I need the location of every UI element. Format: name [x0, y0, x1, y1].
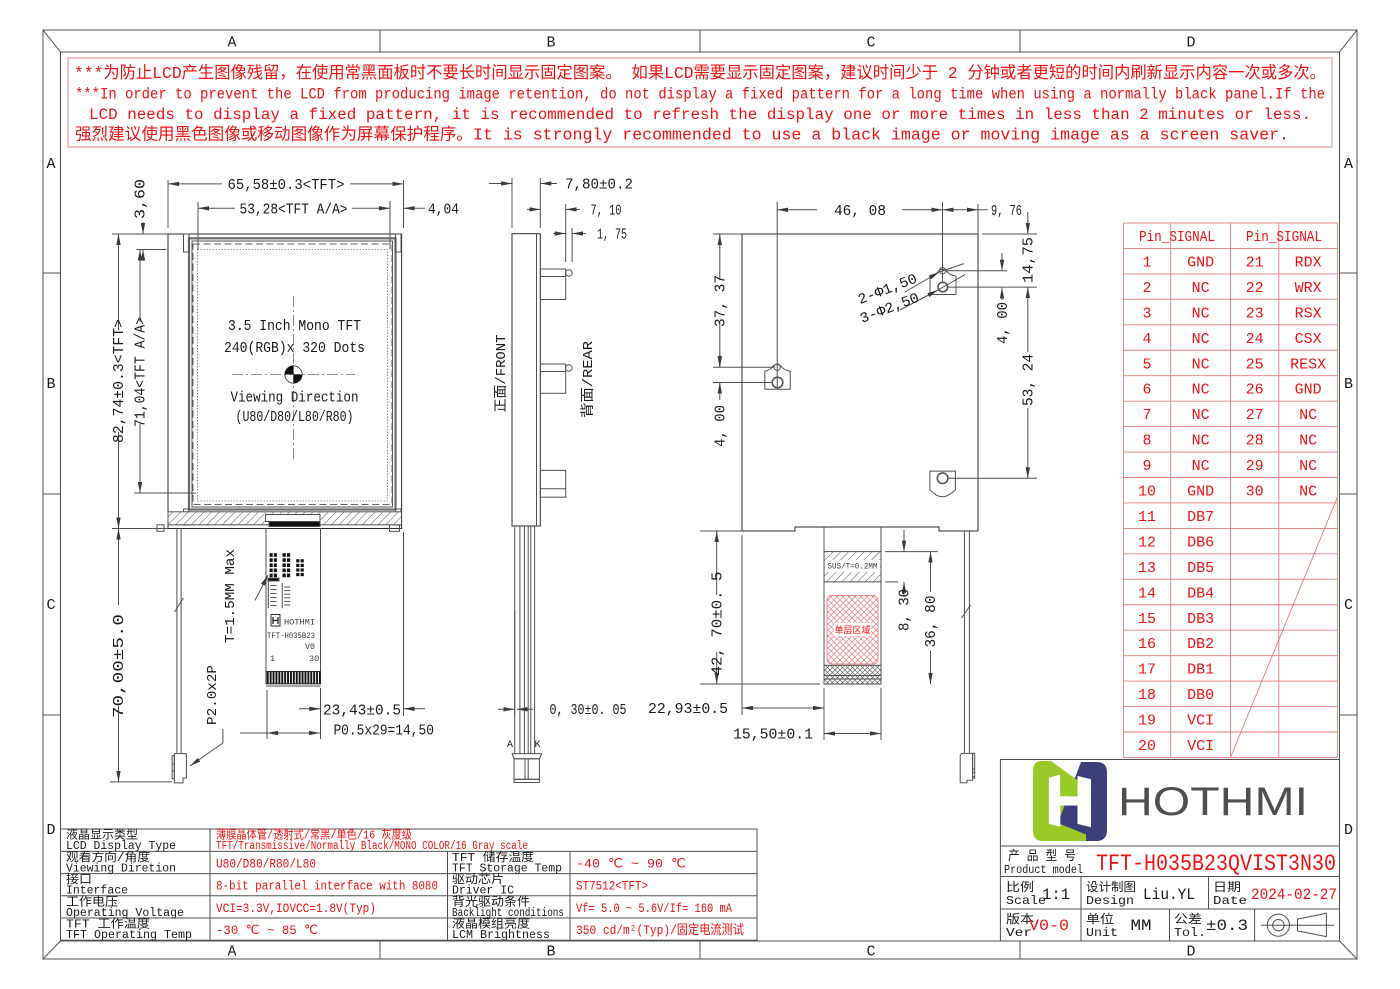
svg-text:8, 30: 8, 30 [898, 589, 914, 631]
svg-text:比例: 比例 [1006, 880, 1034, 895]
svg-text:B: B [546, 944, 555, 961]
svg-text:30: 30 [309, 654, 319, 664]
svg-text:10: 10 [1138, 484, 1156, 501]
svg-text:Tol.: Tol. [1174, 926, 1206, 940]
svg-text:82,74±0.3<TFT>: 82,74±0.3<TFT> [112, 319, 128, 443]
svg-text:9: 9 [1143, 458, 1152, 475]
svg-text:29: 29 [1246, 458, 1264, 475]
svg-text:42, 70±0. 5: 42, 70±0. 5 [710, 572, 726, 676]
svg-text:6: 6 [1143, 382, 1152, 399]
svg-text:240(RGB)x 320 Dots: 240(RGB)x 320 Dots [224, 341, 365, 357]
svg-text:70,00±5.0: 70,00±5.0 [112, 614, 128, 718]
svg-text:Product model: Product model [1004, 863, 1083, 877]
svg-text:46, 08: 46, 08 [834, 204, 886, 220]
svg-text:DB4: DB4 [1187, 585, 1214, 602]
svg-text:强烈建议使用黑色图像或移动图像作为屏幕保护程序。It is: 强烈建议使用黑色图像或移动图像作为屏幕保护程序。It is strongly r… [75, 125, 1289, 145]
svg-text:Unit: Unit [1086, 926, 1118, 940]
svg-text:14: 14 [1138, 585, 1156, 602]
svg-text:Liu.YL: Liu.YL [1143, 886, 1195, 904]
svg-text:9, 76: 9, 76 [991, 204, 1022, 220]
svg-text:TFT Operating Temp: TFT Operating Temp [66, 929, 192, 942]
svg-text:TFT-H035B23: TFT-H035B23 [267, 631, 315, 641]
svg-text:NC: NC [1299, 484, 1317, 501]
svg-text:21: 21 [1246, 254, 1264, 271]
svg-text:26: 26 [1246, 382, 1264, 399]
svg-text:A: A [227, 944, 236, 961]
svg-text:RDX: RDX [1295, 254, 1322, 271]
svg-text:25: 25 [1246, 356, 1264, 373]
svg-text:NC: NC [1299, 433, 1317, 450]
svg-text:16: 16 [1138, 636, 1156, 653]
svg-text:HOTHMI: HOTHMI [284, 618, 315, 628]
svg-text:DB6: DB6 [1187, 534, 1214, 551]
svg-text:1: 1 [1143, 254, 1152, 271]
svg-text:1: 1 [270, 654, 275, 664]
svg-text:7: 7 [1143, 407, 1152, 424]
svg-text:TFT-H035B23QVIST3N30: TFT-H035B23QVIST3N30 [1096, 851, 1336, 877]
svg-text:NC: NC [1192, 305, 1210, 322]
svg-text:23,43±0.5: 23,43±0.5 [323, 704, 401, 720]
svg-text:单层区域: 单层区域 [835, 625, 871, 637]
svg-text:13: 13 [1138, 560, 1156, 577]
svg-text:WRX: WRX [1295, 280, 1322, 297]
svg-text:背面/REAR: 背面/REAR [580, 341, 597, 418]
svg-text:3: 3 [1143, 305, 1152, 322]
svg-text:NC: NC [1192, 407, 1210, 424]
svg-text:产 品 型 号: 产 品 型 号 [1008, 849, 1076, 864]
svg-text:C: C [46, 597, 55, 614]
svg-text:14,75: 14,75 [1022, 237, 1038, 283]
svg-text:Pin_SIGNAL: Pin_SIGNAL [1246, 229, 1322, 246]
svg-text:24: 24 [1246, 331, 1264, 348]
svg-text:17: 17 [1138, 662, 1156, 679]
svg-text:53, 24: 53, 24 [1022, 354, 1038, 406]
svg-text:U80/D80/R80/L80: U80/D80/R80/L80 [216, 856, 316, 871]
svg-text:7, 10: 7, 10 [591, 203, 622, 219]
svg-text:3,60: 3,60 [134, 179, 150, 219]
svg-text:20: 20 [1138, 738, 1156, 755]
svg-text:NC: NC [1192, 280, 1210, 297]
svg-text:B: B [1344, 376, 1353, 393]
svg-text:RESX: RESX [1290, 356, 1326, 373]
svg-text:27: 27 [1246, 407, 1264, 424]
svg-text:4, 00: 4, 00 [714, 405, 730, 447]
svg-text:22: 22 [1246, 280, 1264, 297]
svg-text:NC: NC [1299, 407, 1317, 424]
svg-text:Viewing Direction: Viewing Direction [231, 391, 359, 407]
svg-text:NC: NC [1192, 382, 1210, 399]
svg-text:CSX: CSX [1295, 331, 1322, 348]
svg-text:Date: Date [1213, 894, 1247, 908]
svg-text:设计制图: 设计制图 [1086, 880, 1136, 895]
svg-text:DB3: DB3 [1187, 611, 1214, 628]
svg-text:-40 ℃ ~ 90 ℃: -40 ℃ ~ 90 ℃ [576, 856, 686, 871]
svg-text:28: 28 [1246, 433, 1264, 450]
svg-text:VCI=3.3V,IOVCC=1.8V(Typ): VCI=3.3V,IOVCC=1.8V(Typ) [216, 901, 376, 916]
svg-text:DB2: DB2 [1187, 636, 1214, 653]
svg-text:B: B [546, 35, 555, 52]
svg-text:30: 30 [1246, 484, 1264, 501]
svg-text:-30 ℃ ~ 85 ℃: -30 ℃ ~ 85 ℃ [216, 923, 318, 938]
svg-text:GND: GND [1187, 484, 1214, 501]
svg-text:T=1.5MM Max: T=1.5MM Max [224, 549, 239, 643]
svg-text:VCI: VCI [1187, 713, 1214, 730]
svg-text:LCM Brightness: LCM Brightness [452, 929, 550, 942]
svg-text:D: D [46, 822, 55, 839]
svg-text:7,80±0.2: 7,80±0.2 [565, 178, 633, 194]
svg-text:2024-02-27: 2024-02-27 [1251, 886, 1337, 904]
svg-text:VCI: VCI [1187, 738, 1214, 755]
svg-text:350 cd/m²(Typ)/固定电流测试: 350 cd/m²(Typ)/固定电流测试 [576, 923, 744, 938]
svg-text:DB7: DB7 [1187, 509, 1214, 526]
svg-text:36, 80: 36, 80 [924, 596, 940, 648]
svg-text:A: A [227, 35, 236, 52]
svg-text:***In order to prevent the LCD: ***In order to prevent the LCD from prod… [75, 86, 1325, 104]
svg-text:Scale: Scale [1006, 894, 1046, 908]
svg-text:4, 00: 4, 00 [996, 302, 1012, 344]
svg-text:4: 4 [1143, 331, 1152, 348]
svg-text:71,04<TFT A/A>: 71,04<TFT A/A> [134, 317, 150, 427]
svg-text:A: A [46, 156, 55, 173]
svg-text:A: A [1344, 156, 1353, 173]
svg-text:15,50±0.1: 15,50±0.1 [733, 728, 813, 744]
svg-text:V0: V0 [305, 642, 315, 652]
svg-text:53,28<TFT A/A>: 53,28<TFT A/A> [240, 202, 348, 218]
svg-text:(U80/D80/L80/R80): (U80/D80/L80/R80) [236, 410, 354, 426]
svg-text:NC: NC [1192, 433, 1210, 450]
svg-text:1:1: 1:1 [1042, 886, 1070, 904]
svg-text:12: 12 [1138, 534, 1156, 551]
svg-text:19: 19 [1138, 713, 1156, 730]
svg-text:37, 37: 37, 37 [714, 275, 730, 327]
svg-text:15: 15 [1138, 611, 1156, 628]
svg-text:RSX: RSX [1295, 305, 1322, 322]
svg-text:Vf= 5.0 ~ 5.6V/If= 160 mA: Vf= 5.0 ~ 5.6V/If= 160 mA [576, 901, 732, 916]
svg-text:D: D [1344, 822, 1353, 839]
svg-text:C: C [866, 944, 875, 961]
svg-text:日期: 日期 [1213, 880, 1241, 895]
svg-text:4,04: 4,04 [428, 202, 459, 218]
svg-text:V0-0: V0-0 [1029, 917, 1069, 935]
svg-text:K: K [534, 740, 540, 751]
svg-text:NC: NC [1192, 356, 1210, 373]
svg-text:8: 8 [1143, 433, 1152, 450]
svg-text:B: B [46, 376, 55, 393]
svg-text:NC: NC [1299, 458, 1317, 475]
svg-text:C: C [866, 35, 875, 52]
svg-text:8-bit parallel interface with: 8-bit parallel interface with 8080 [216, 879, 438, 894]
svg-text:C: C [1344, 597, 1353, 614]
svg-text:23: 23 [1246, 305, 1264, 322]
svg-text:11: 11 [1138, 509, 1156, 526]
svg-text:公差: 公差 [1174, 912, 1202, 927]
svg-text:MM: MM [1131, 917, 1152, 935]
svg-text:Pin_SIGNAL: Pin_SIGNAL [1139, 229, 1215, 246]
svg-text:A: A [507, 740, 513, 751]
svg-text:***为防止LCD产生图像残留，在使用常黑面板时不要长时间显: ***为防止LCD产生图像残留，在使用常黑面板时不要长时间显示固定图案。 如果L… [74, 63, 1326, 83]
svg-text:GND: GND [1295, 382, 1322, 399]
svg-text:1, 75: 1, 75 [597, 228, 627, 244]
svg-text:单位: 单位 [1086, 911, 1114, 927]
svg-text:ST7512<TFT>: ST7512<TFT> [576, 879, 648, 894]
svg-text:NC: NC [1192, 331, 1210, 348]
svg-text:D: D [1186, 944, 1195, 961]
svg-text:GND: GND [1187, 254, 1214, 271]
svg-text:3.5 Inch Mono TFT: 3.5 Inch Mono TFT [228, 319, 361, 335]
svg-text:±0.3: ±0.3 [1206, 917, 1248, 935]
svg-text:22,93±0.5: 22,93±0.5 [648, 702, 728, 718]
svg-text:18: 18 [1138, 687, 1156, 704]
svg-text:2: 2 [1143, 280, 1152, 297]
svg-text:P2.0x2P: P2.0x2P [205, 665, 221, 725]
svg-text:0, 30±0. 05: 0, 30±0. 05 [550, 703, 627, 719]
svg-text:正面/FRONT: 正面/FRONT [494, 335, 510, 413]
svg-text:Design: Design [1086, 894, 1134, 908]
svg-text:DB0: DB0 [1187, 687, 1214, 704]
svg-text:5: 5 [1143, 356, 1152, 373]
svg-text:HOTHMI: HOTHMI [1118, 780, 1308, 824]
svg-text:65,58±0.3<TFT>: 65,58±0.3<TFT> [228, 178, 345, 194]
svg-text:DB1: DB1 [1187, 662, 1214, 679]
svg-text:LCD needs to display a fixed p: LCD needs to display a fixed pattern, it… [89, 106, 1311, 124]
svg-text:DB5: DB5 [1187, 560, 1214, 577]
svg-text:NC: NC [1192, 458, 1210, 475]
svg-text:SUS/T=0.2MM: SUS/T=0.2MM [828, 563, 878, 572]
svg-text:P0.5x29=14,50: P0.5x29=14,50 [333, 723, 434, 739]
svg-text:D: D [1186, 35, 1195, 52]
